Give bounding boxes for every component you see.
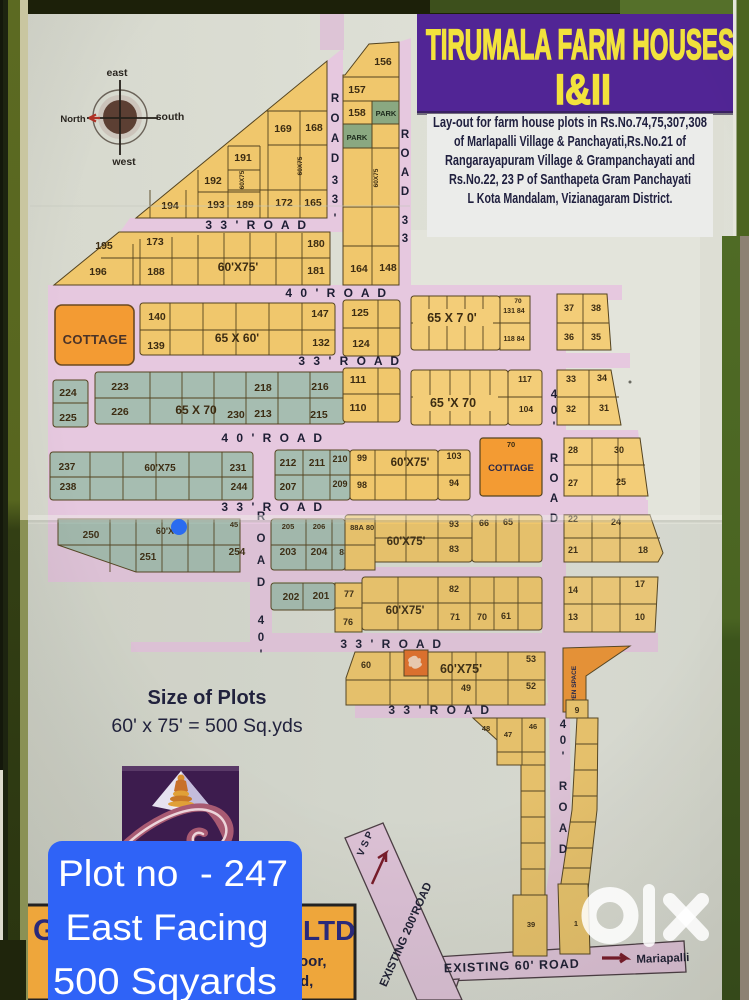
svg-text:East Facing: East Facing (66, 907, 269, 948)
svg-text:d,: d, (300, 973, 313, 990)
svg-text:500 Sqyards: 500 Sqyards (53, 961, 277, 1000)
svg-text:LTD: LTD (303, 915, 355, 946)
svg-text:Plot no - 247: Plot no - 247 (58, 853, 288, 894)
svg-text:oor,: oor, (299, 953, 327, 970)
